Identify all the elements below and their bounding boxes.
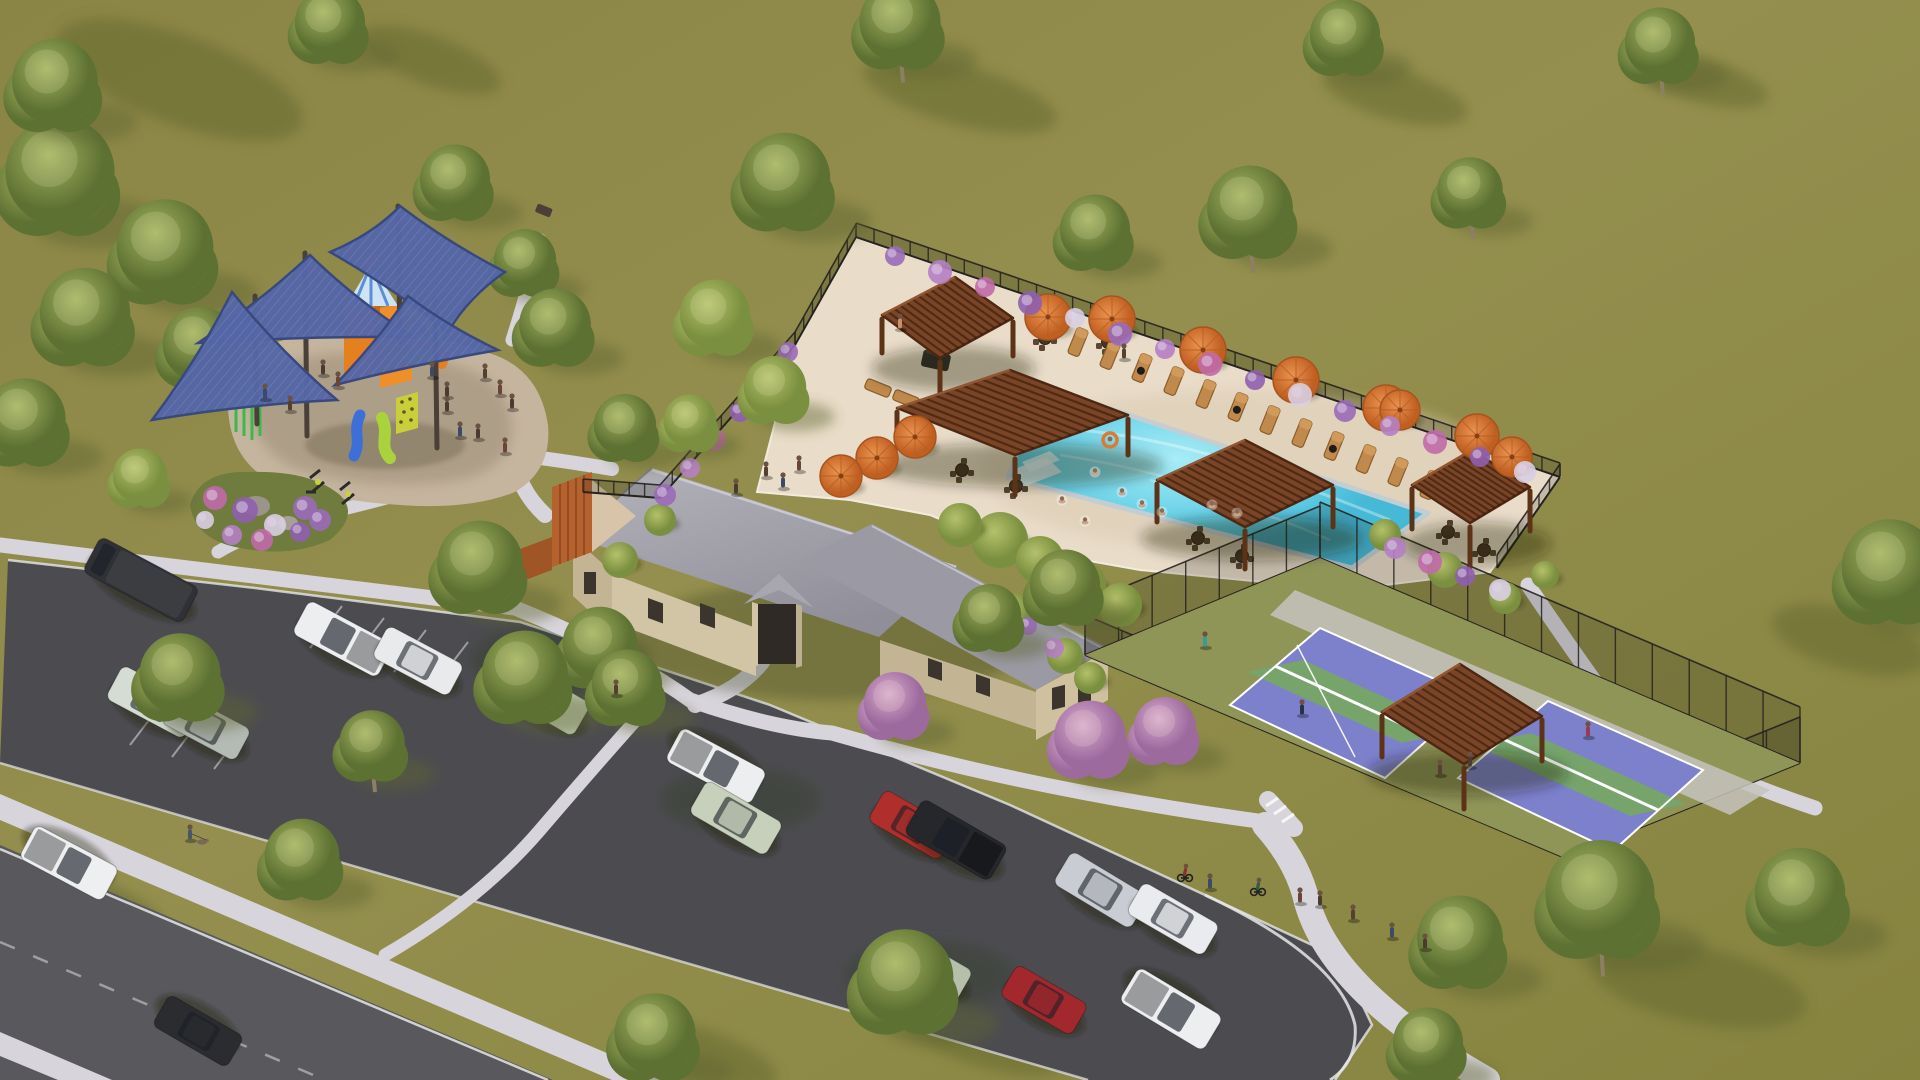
swimmer <box>1207 500 1218 511</box>
bush <box>602 542 638 578</box>
bush <box>1074 662 1106 694</box>
swimmer <box>1090 467 1101 478</box>
swimmer <box>1080 516 1091 527</box>
climbing-wall <box>396 392 418 434</box>
flower-clump <box>196 511 214 529</box>
swimmer <box>1117 487 1128 498</box>
swimmer <box>1137 499 1148 510</box>
rendering-canvas <box>0 0 1920 1080</box>
bush <box>644 504 676 536</box>
swimmer <box>1057 495 1068 506</box>
bush <box>938 503 982 547</box>
swimmer <box>1157 507 1168 518</box>
swimmer <box>1232 508 1243 519</box>
bush <box>1531 561 1559 589</box>
amenity-center-aerial-rendering <box>0 0 1920 1080</box>
breezeway-opening <box>758 604 796 664</box>
